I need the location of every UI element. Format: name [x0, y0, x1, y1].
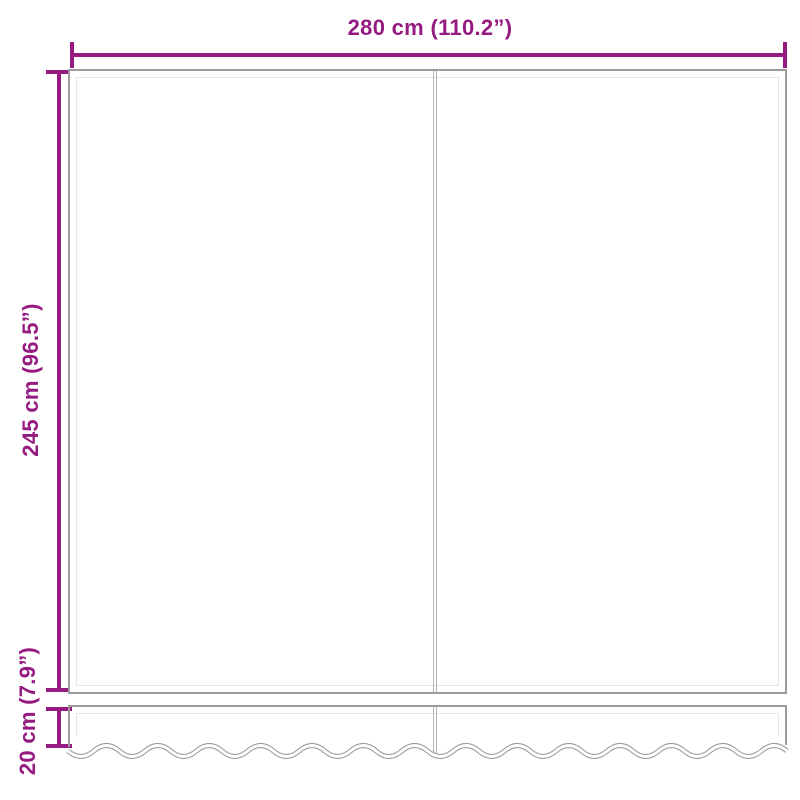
panel-inner-stitch-line [76, 77, 779, 686]
valance-wave-edge [0, 730, 800, 775]
height-dimension-line [57, 71, 61, 691]
fabric-panel [68, 69, 787, 694]
width-dimension-tick-right [783, 42, 787, 68]
valance-top-edge [68, 705, 787, 707]
width-dimension-tick-left [70, 42, 74, 68]
panel-center-seam [433, 71, 437, 692]
valance-inner-stitch-line [76, 713, 779, 714]
height-dimension-label: 245 cm (96.5”) [19, 303, 43, 456]
wave-inner-line [68, 746, 787, 757]
product-dimension-diagram: 280 cm (110.2”) 245 cm (96.5”) 20 cm (7.… [0, 0, 800, 800]
width-dimension-line [72, 53, 786, 57]
width-dimension-label: 280 cm (110.2”) [348, 16, 513, 40]
